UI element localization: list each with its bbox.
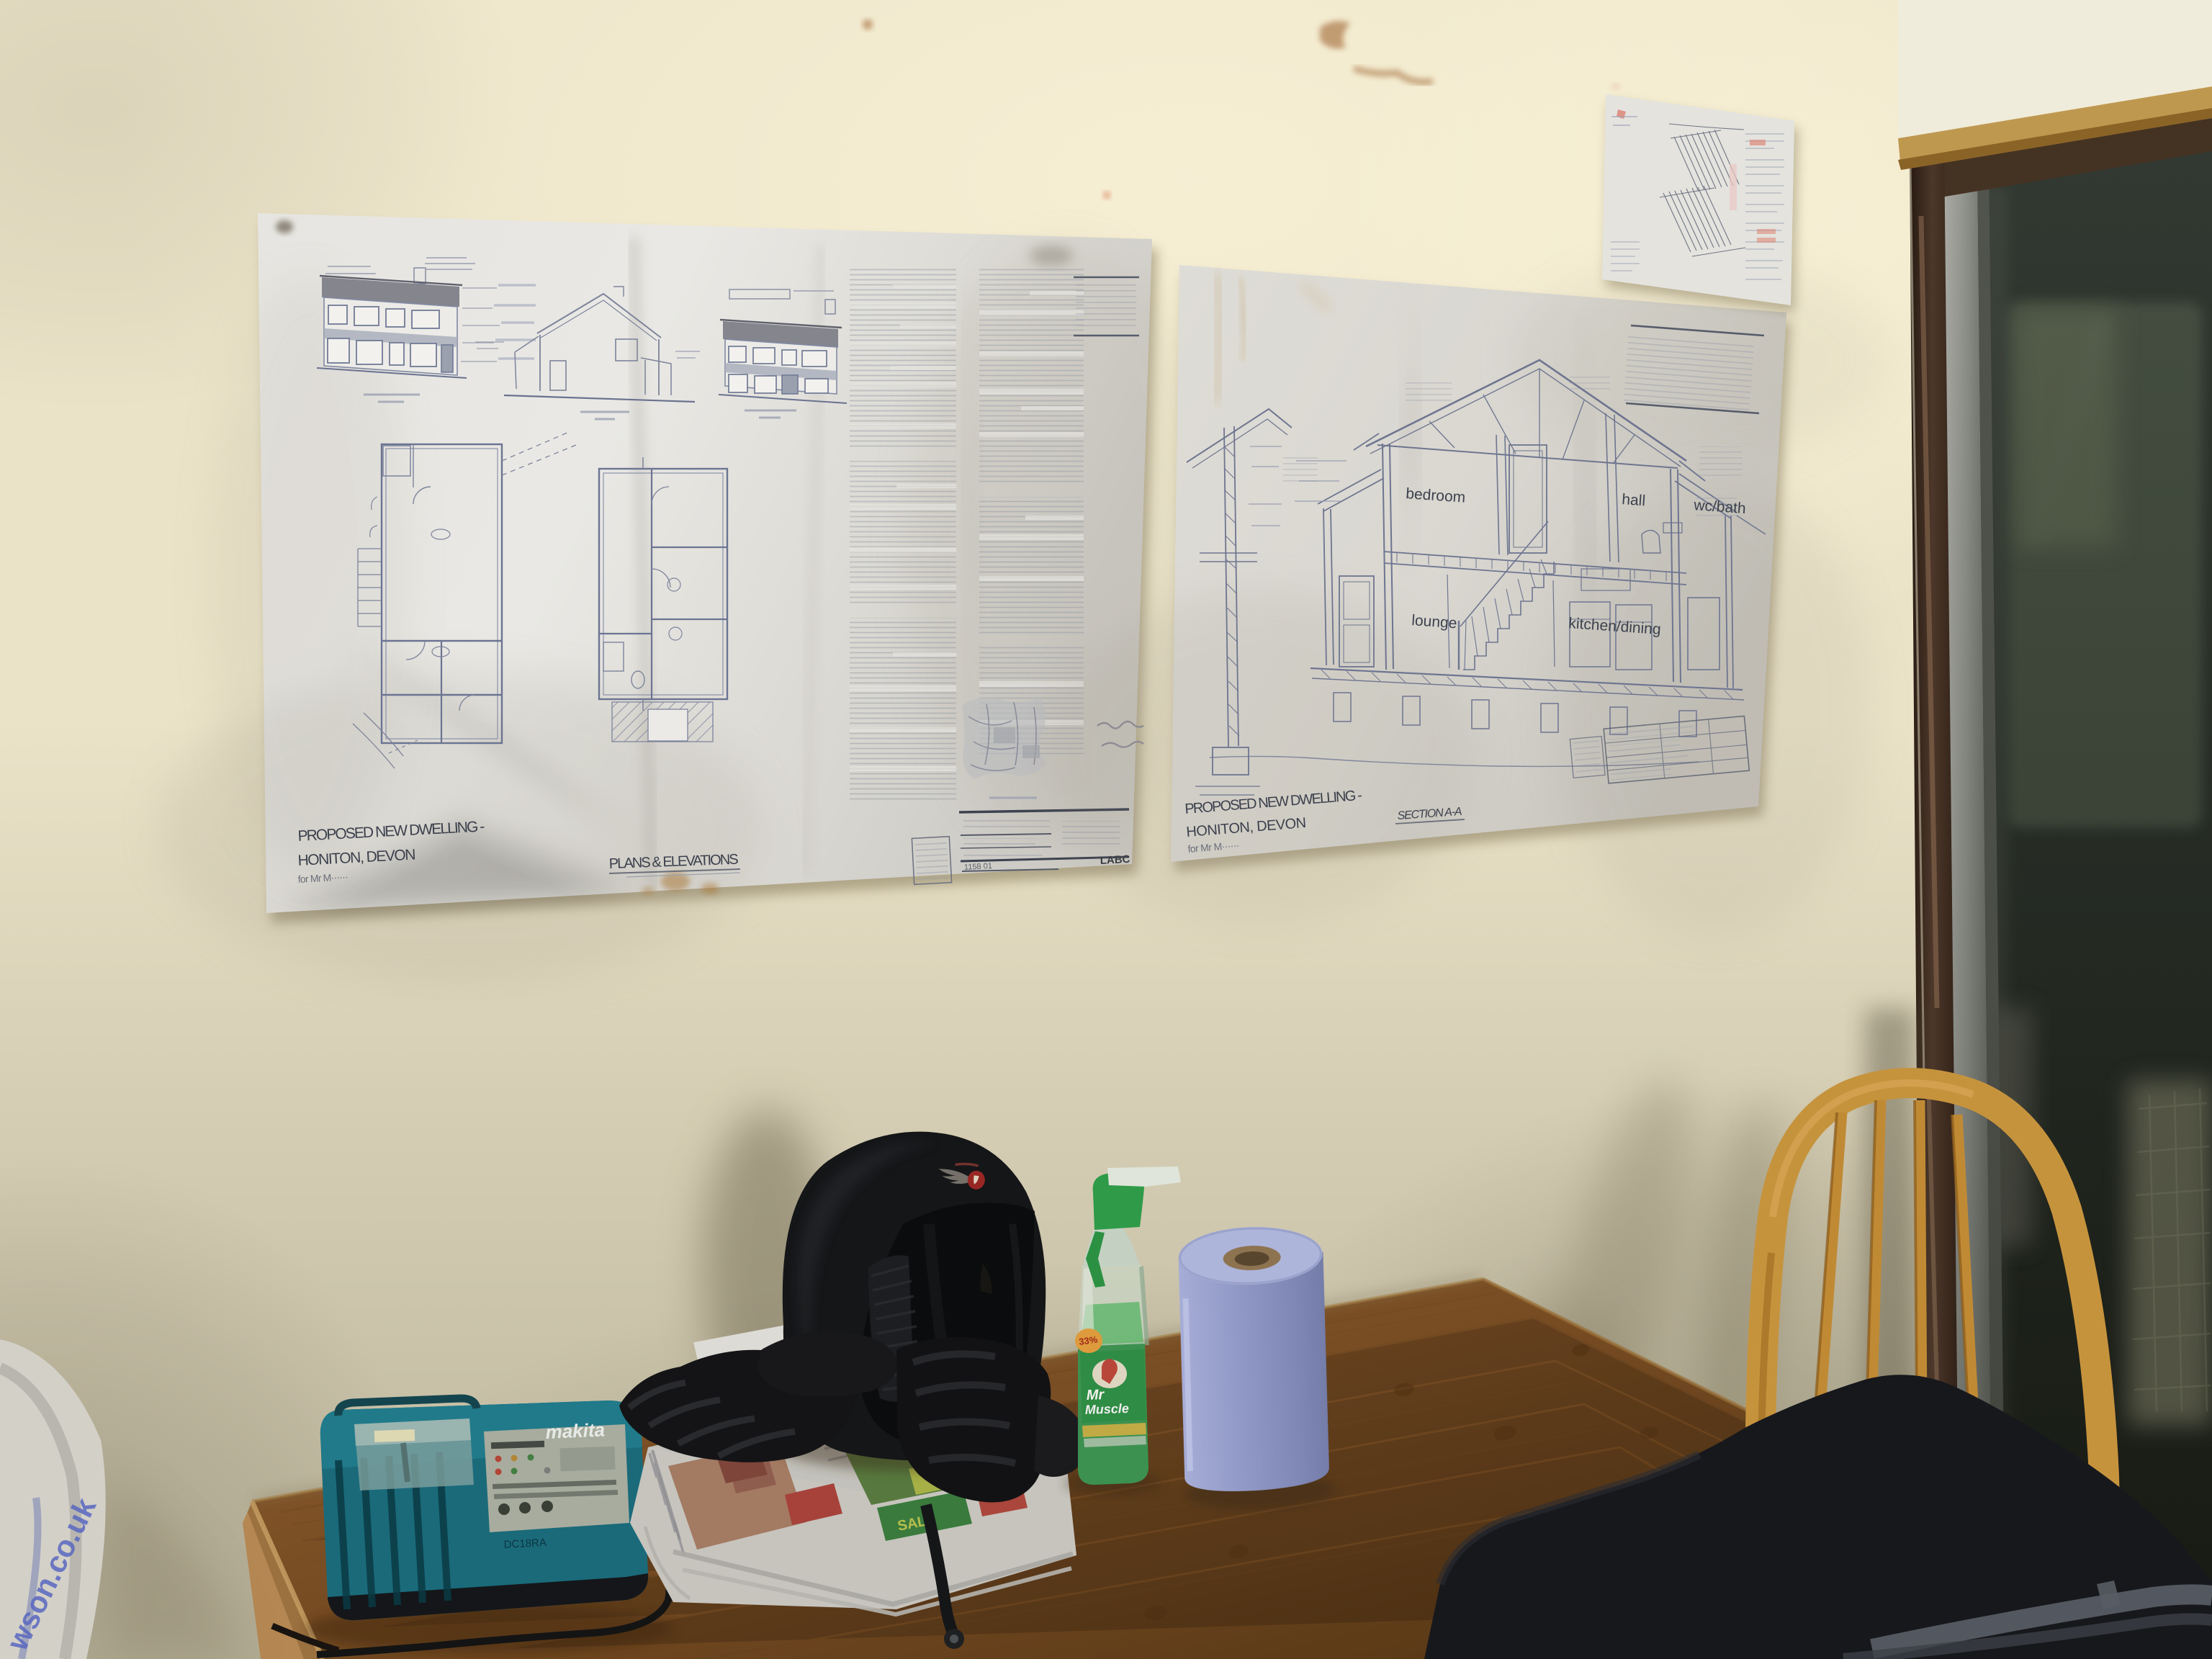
svg-text:hall: hall: [1622, 491, 1646, 509]
svg-text:makita: makita: [545, 1419, 606, 1443]
svg-text:lounge: lounge: [1411, 612, 1458, 631]
svg-text:Muscle: Muscle: [1084, 1401, 1129, 1417]
svg-text:Mr: Mr: [1086, 1387, 1105, 1403]
svg-text:1158 01: 1158 01: [964, 862, 993, 872]
svg-text:DC18RA: DC18RA: [503, 1537, 547, 1551]
